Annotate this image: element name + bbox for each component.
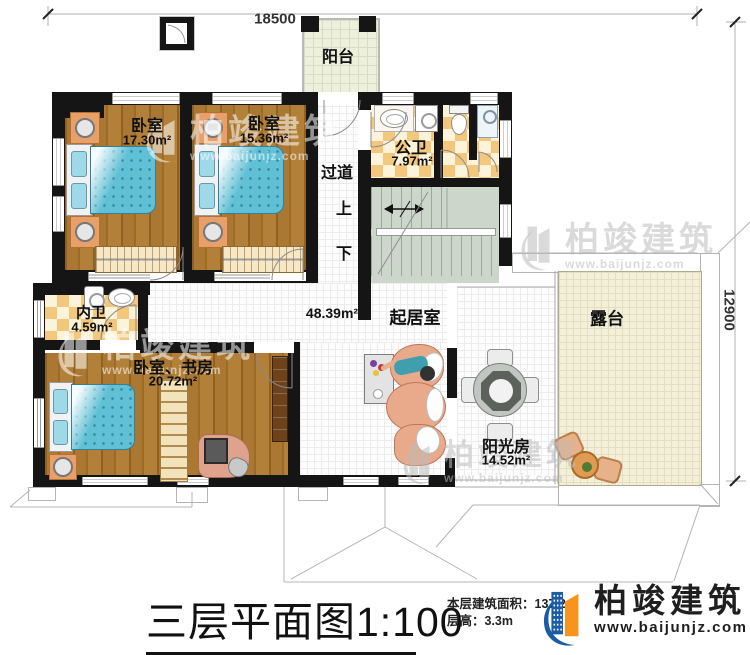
label-bedroom1-area: 17.30m² [123,133,171,148]
label-living: 起居室 [390,304,441,329]
label-corridor: 过道 [321,159,353,183]
brand-logo: 柏竣建筑 www.baijunjz.com [536,584,747,650]
roof-outlines [10,222,750,582]
page-title: 三层平面图1:100 [146,588,464,648]
floor-plan-page: 柏竣建筑 www.baijunjz.com 柏竣建筑 www.baijunjz.… [0,0,750,655]
label-private-bath-area: 4.59m² [71,320,112,335]
stairs-break-line [378,192,428,274]
label-public-bath-area: 7.97m² [391,154,432,169]
brand-url: www.baijunjz.com [594,619,747,636]
brand-logo-icon [536,584,590,650]
label-terrace: 露台 [590,305,624,330]
label-balcony: 阳台 [322,43,354,67]
dimension-ticks [43,9,740,486]
dimension-right: 12900 [721,289,738,331]
chimney-curve [168,25,185,43]
dimension-top: 18500 [254,11,296,28]
brand-name: 柏竣建筑 [594,584,747,619]
label-sunroom-area: 14.52m² [482,453,530,468]
label-stairs-down: 下 [336,240,352,264]
label-stairs-up: 上 [336,195,352,219]
label-study-area: 20.72m² [149,374,197,389]
label-living-area: 48.39m² [306,305,358,321]
title-block: 三层平面图1:100 [146,588,464,655]
label-bedroom2-area: 15.36m² [240,131,288,146]
